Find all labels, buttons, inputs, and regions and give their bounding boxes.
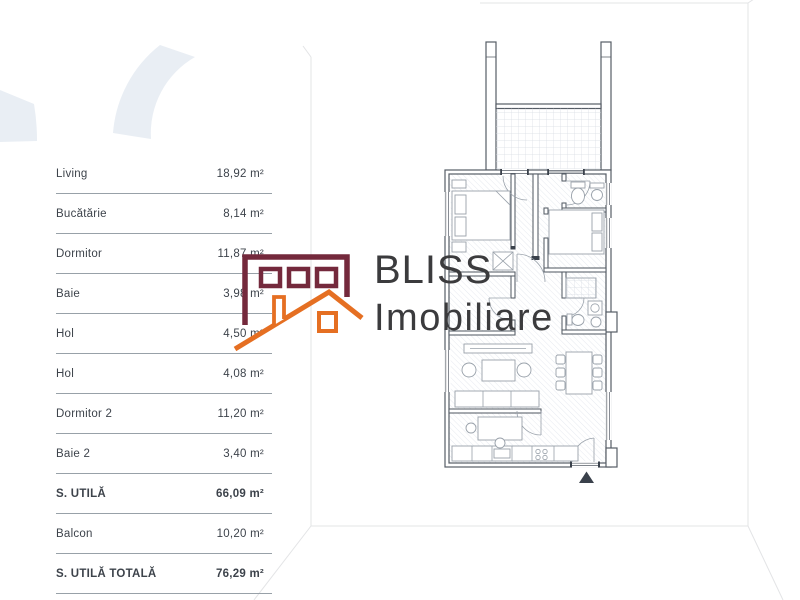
roof-line [235, 292, 362, 349]
table-row: S. UTILĂ 66,09 m² [56, 474, 272, 514]
wardrobe [493, 252, 513, 270]
table-row: Balcon 10,20 m² [56, 514, 272, 554]
room-label: Living [56, 168, 88, 180]
area-table: Living 18,92 m² Bucătărie 8,14 m² Dormit… [56, 154, 272, 594]
room-area: 10,20 m² [217, 528, 272, 540]
corner-arc-ornament [0, 45, 195, 142]
room-area: 66,09 m² [216, 488, 272, 500]
bed [549, 210, 604, 254]
room-label: Hol [56, 368, 74, 380]
room-label: Dormitor 2 [56, 408, 112, 420]
shower [566, 278, 596, 298]
logo-brand-name: BLISS [374, 250, 492, 290]
armchair [462, 363, 476, 377]
sink [590, 183, 604, 201]
logo-brand-type: Imobiliare [374, 299, 554, 337]
coffee-table [482, 360, 515, 381]
logo-house-icon [228, 243, 370, 355]
room-area: 76,29 m² [216, 568, 272, 580]
toilet [567, 314, 584, 326]
table-row: Dormitor 2 11,20 m² [56, 394, 272, 434]
toilet [571, 182, 585, 204]
table-row: Hol 4,08 m² [56, 354, 272, 394]
table-row: Bucătărie 8,14 m² [56, 194, 272, 234]
room-label: S. UTILĂ [56, 488, 106, 500]
room-area: 3,40 m² [223, 448, 272, 460]
room-label: Dormitor [56, 248, 102, 260]
sofa [455, 391, 539, 407]
listing-image: Living 18,92 m² Bucătărie 8,14 m² Dormit… [0, 0, 800, 600]
room-area: 18,92 m² [217, 168, 272, 180]
sink [591, 317, 601, 327]
balcony [486, 42, 611, 170]
room-area: 4,08 m² [223, 368, 272, 380]
room-label: Baie 2 [56, 448, 90, 460]
room-label: Bucătărie [56, 208, 107, 220]
roof-window [319, 313, 336, 331]
armchair [517, 363, 531, 377]
nightstand [452, 180, 466, 188]
sideboard [464, 344, 532, 353]
room-label: S. UTILĂ TOTALĂ [56, 568, 156, 580]
table-row: S. UTILĂ TOTALĂ 76,29 m² [56, 554, 272, 594]
room-label: Balcon [56, 528, 93, 540]
room-label: Hol [56, 328, 74, 340]
kitchen-counter [452, 446, 578, 461]
balcony-floor [496, 109, 601, 171]
washing-machine [588, 301, 602, 315]
room-area: 11,20 m² [217, 408, 272, 420]
table-row: Living 18,92 m² [56, 154, 272, 194]
dining-set [556, 352, 602, 394]
bed [452, 191, 510, 240]
balcony-railing [496, 104, 601, 109]
kitchen-sink [494, 449, 510, 458]
table-row: Baie 2 3,40 m² [56, 434, 272, 474]
entrance-marker [579, 472, 594, 484]
room-area: 8,14 m² [223, 208, 272, 220]
room-label: Baie [56, 288, 80, 300]
